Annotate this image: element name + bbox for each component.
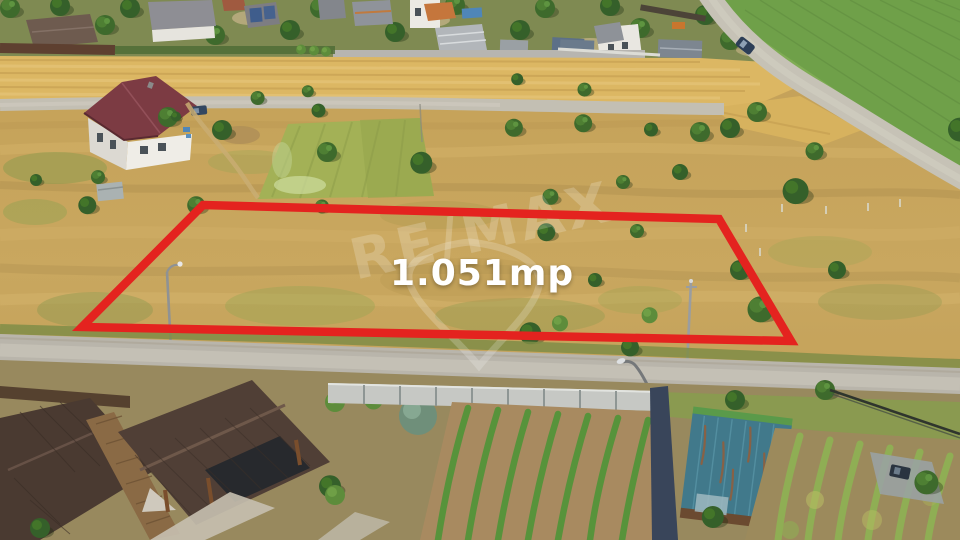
plot-area-label: 1.051mp (390, 253, 574, 294)
wood-fence (0, 43, 115, 55)
house-roof (148, 0, 216, 30)
house-roof (222, 0, 246, 11)
warehouse-roof (435, 24, 487, 54)
house-roof (424, 2, 456, 21)
small-shed (96, 182, 124, 202)
house-roof (318, 0, 346, 20)
pool-tarp (462, 7, 483, 18)
scene: RE/MAX 1.051mp (0, 0, 960, 540)
aerial-photo: RE/MAX 1.051mp (0, 0, 960, 540)
blue-tarp (183, 127, 190, 132)
orange-gate (672, 22, 685, 29)
blue-tarp (186, 134, 191, 138)
vineyard (420, 402, 668, 540)
